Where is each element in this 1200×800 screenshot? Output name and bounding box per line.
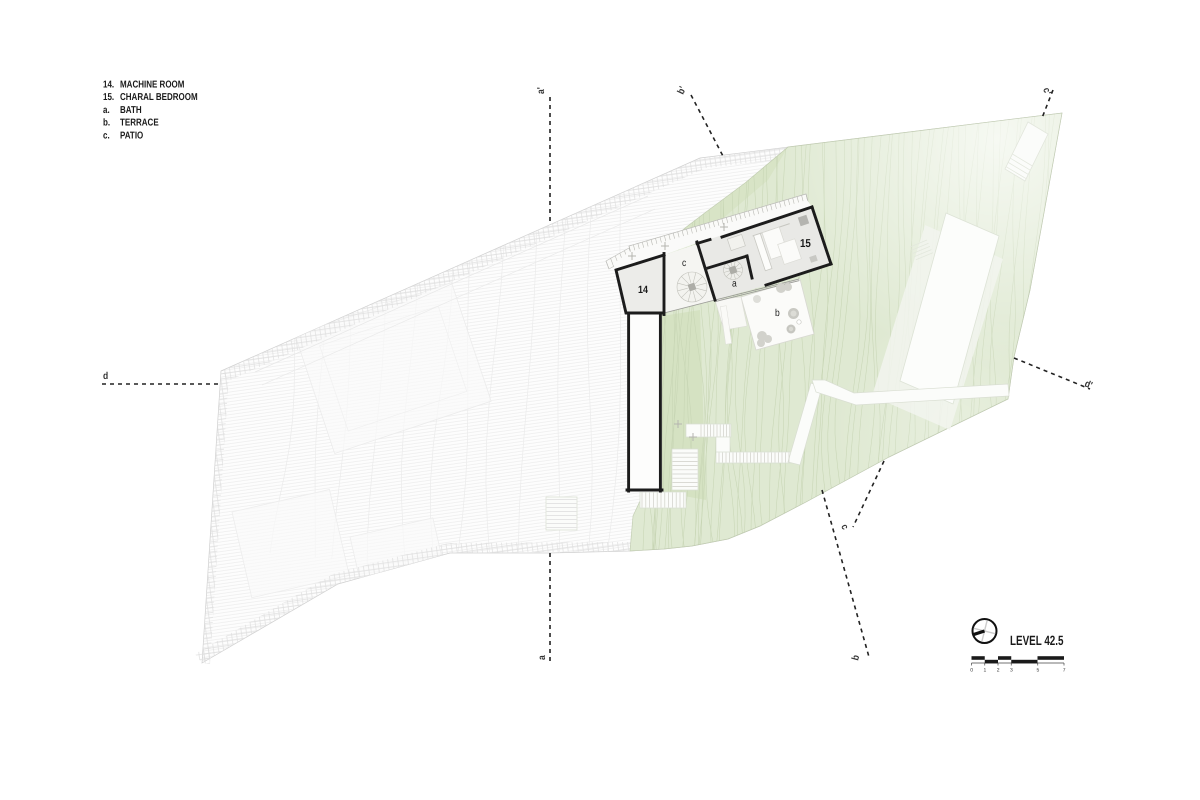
svg-text:a: a [732,279,737,290]
svg-text:CHARAL BEDROOM: CHARAL BEDROOM [120,92,198,103]
svg-text:b.: b. [103,118,110,129]
svg-text:c.: c. [103,130,110,141]
svg-text:7: 7 [1063,668,1066,674]
svg-text:1: 1 [983,668,986,674]
svg-text:MACHINE ROOM: MACHINE ROOM [120,80,184,91]
svg-text:5: 5 [1036,668,1039,674]
svg-text:c: c [682,258,686,269]
svg-text:BATH: BATH [120,105,142,116]
svg-text:14: 14 [638,284,648,296]
svg-text:a': a' [536,87,547,94]
svg-text:0: 0 [970,668,973,674]
svg-text:15: 15 [800,238,811,250]
svg-text:b: b [775,308,780,319]
svg-text:PATIO: PATIO [120,130,143,141]
svg-text:TERRACE: TERRACE [120,118,159,129]
svg-text:LEVEL 42.5: LEVEL 42.5 [1010,633,1064,648]
svg-text:14.: 14. [103,80,114,91]
svg-text:d: d [103,371,108,382]
svg-text:a: a [537,655,548,660]
svg-text:2: 2 [997,668,1000,674]
svg-text:3: 3 [1010,668,1013,674]
svg-text:15.: 15. [103,92,114,103]
svg-text:a.: a. [103,105,110,116]
